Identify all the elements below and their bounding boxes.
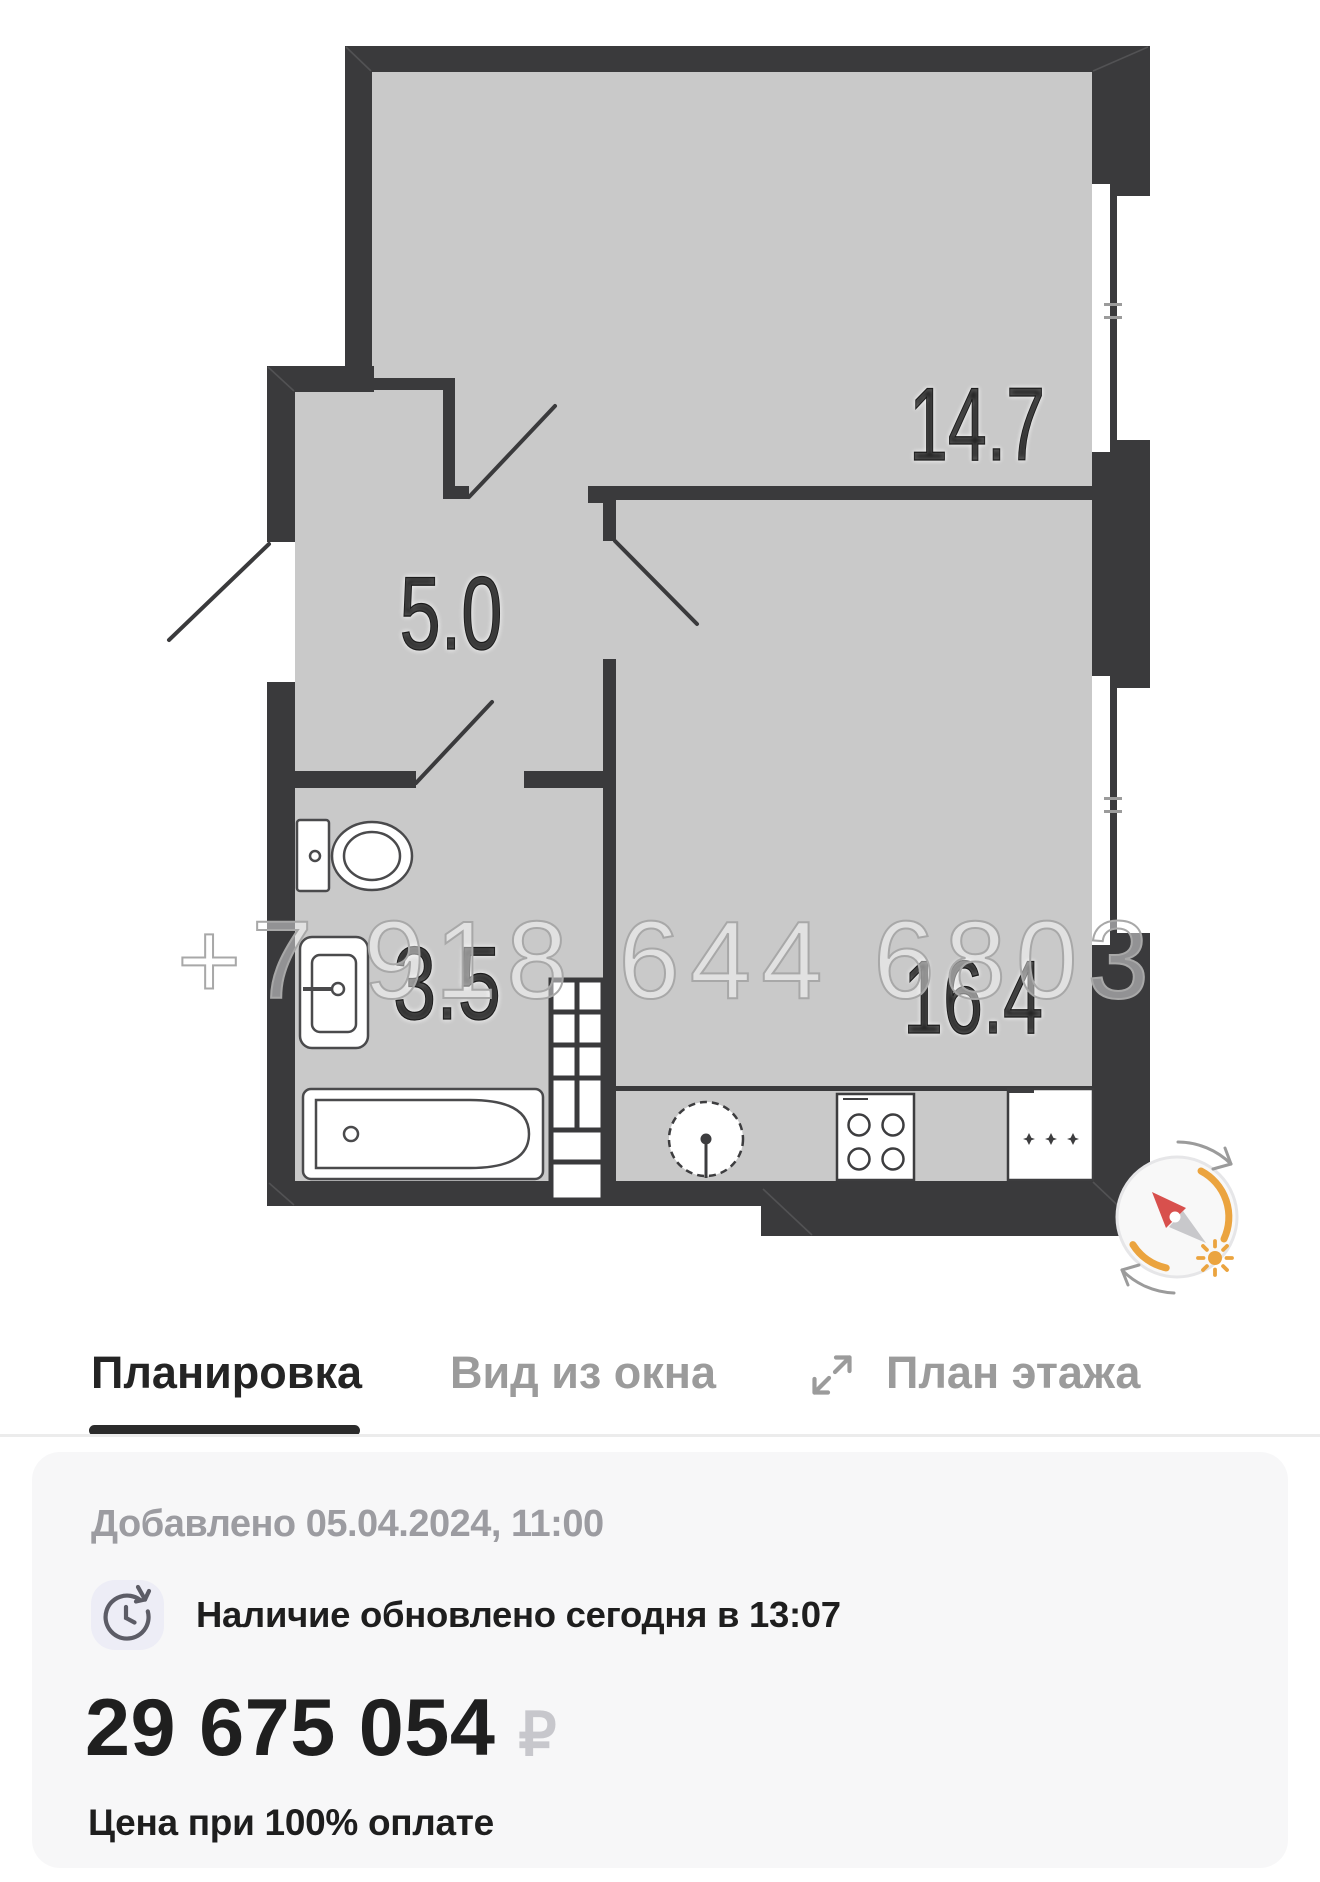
svg-text:5.0: 5.0 [400, 556, 503, 672]
svg-text:+7 918 644 6803: +7 918 644 6803 [177, 899, 1159, 1022]
svg-text:14.7: 14.7 [909, 367, 1045, 483]
